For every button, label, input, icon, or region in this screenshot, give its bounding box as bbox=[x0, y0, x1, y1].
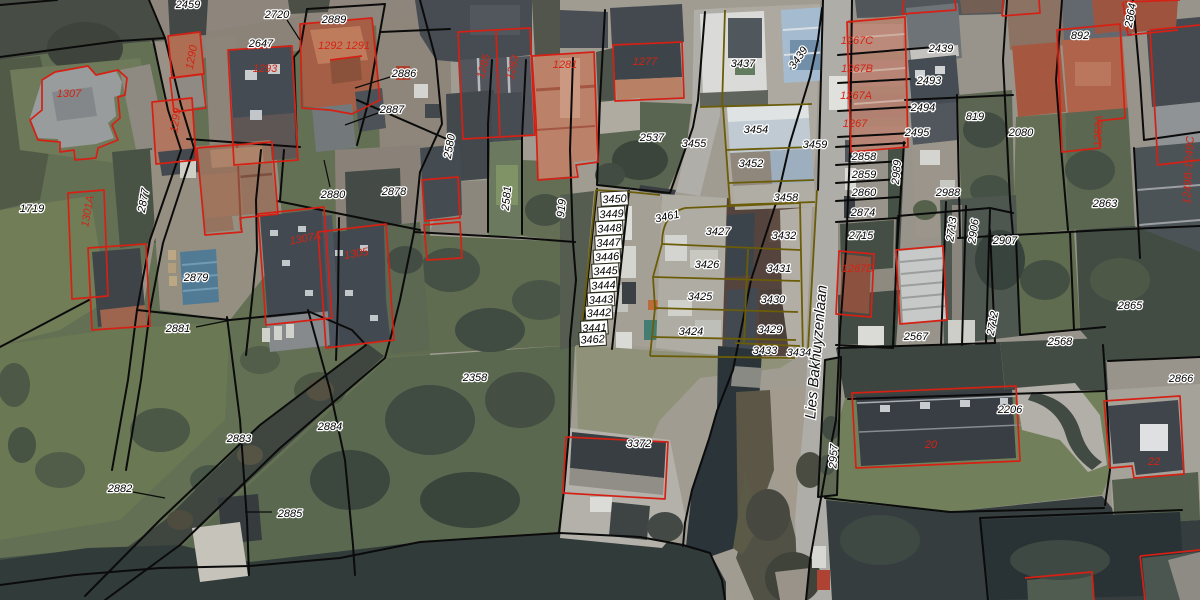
svg-text:3445: 3445 bbox=[593, 265, 619, 278]
svg-text:2886: 2886 bbox=[391, 68, 417, 80]
svg-text:3433: 3433 bbox=[753, 345, 778, 357]
svg-text:2863: 2863 bbox=[1092, 198, 1118, 210]
svg-text:1267A: 1267A bbox=[840, 90, 872, 102]
svg-text:2206: 2206 bbox=[997, 404, 1023, 416]
svg-text:2439: 2439 bbox=[928, 43, 953, 55]
svg-text:819: 819 bbox=[966, 111, 984, 123]
svg-text:2865: 2865 bbox=[1117, 300, 1143, 312]
svg-text:2860: 2860 bbox=[851, 187, 877, 199]
svg-text:1281: 1281 bbox=[553, 59, 577, 71]
svg-text:3450: 3450 bbox=[602, 193, 628, 206]
svg-text:1267D: 1267D bbox=[842, 263, 874, 275]
svg-text:2858: 2858 bbox=[851, 151, 877, 163]
svg-text:3455: 3455 bbox=[682, 138, 707, 150]
svg-text:2493: 2493 bbox=[916, 75, 942, 87]
svg-text:3446: 3446 bbox=[595, 251, 621, 264]
svg-text:3447: 3447 bbox=[596, 237, 622, 250]
svg-text:2866: 2866 bbox=[1168, 373, 1194, 385]
svg-text:3427: 3427 bbox=[706, 226, 731, 238]
svg-text:3425: 3425 bbox=[688, 291, 713, 303]
svg-text:1253A: 1253A bbox=[1092, 115, 1106, 147]
svg-text:2715: 2715 bbox=[848, 230, 874, 242]
svg-text:2494: 2494 bbox=[910, 102, 935, 114]
svg-text:3442: 3442 bbox=[586, 307, 611, 320]
svg-text:2880: 2880 bbox=[320, 189, 346, 201]
svg-text:2887: 2887 bbox=[379, 104, 405, 116]
svg-text:1292 1291: 1292 1291 bbox=[318, 40, 370, 52]
svg-text:2957: 2957 bbox=[827, 443, 840, 470]
svg-text:3431: 3431 bbox=[767, 263, 791, 275]
svg-text:3443: 3443 bbox=[589, 294, 615, 307]
svg-text:2647: 2647 bbox=[248, 38, 274, 50]
svg-text:20: 20 bbox=[924, 439, 938, 451]
svg-text:3426: 3426 bbox=[695, 259, 720, 271]
svg-text:3444: 3444 bbox=[591, 279, 616, 292]
svg-text:2884: 2884 bbox=[317, 421, 342, 433]
svg-text:2459: 2459 bbox=[175, 0, 200, 11]
svg-text:3429: 3429 bbox=[758, 324, 782, 336]
svg-text:3459: 3459 bbox=[803, 139, 827, 151]
svg-text:2883: 2883 bbox=[226, 433, 252, 445]
svg-text:22: 22 bbox=[1147, 456, 1160, 468]
svg-text:2989: 2989 bbox=[890, 159, 904, 185]
svg-text:2907: 2907 bbox=[992, 235, 1018, 247]
svg-text:2720: 2720 bbox=[264, 9, 290, 21]
svg-text:2885: 2885 bbox=[277, 508, 303, 520]
svg-text:3448: 3448 bbox=[597, 222, 623, 235]
svg-text:1719: 1719 bbox=[20, 203, 44, 215]
svg-text:1293: 1293 bbox=[253, 63, 278, 75]
svg-text:3437: 3437 bbox=[731, 58, 756, 70]
svg-text:3449: 3449 bbox=[599, 208, 624, 221]
svg-text:2879: 2879 bbox=[183, 272, 208, 284]
svg-text:2881: 2881 bbox=[165, 323, 190, 335]
svg-text:2878: 2878 bbox=[381, 186, 407, 198]
svg-text:2889: 2889 bbox=[321, 14, 346, 26]
svg-text:2358: 2358 bbox=[462, 372, 488, 384]
svg-text:3458: 3458 bbox=[774, 192, 799, 204]
svg-text:1267B: 1267B bbox=[841, 63, 873, 75]
svg-text:1307: 1307 bbox=[57, 88, 82, 100]
svg-text:2874: 2874 bbox=[850, 207, 875, 219]
svg-text:2882: 2882 bbox=[107, 483, 132, 495]
svg-text:3454: 3454 bbox=[744, 124, 768, 136]
svg-text:3462: 3462 bbox=[580, 333, 605, 346]
svg-text:3430: 3430 bbox=[761, 294, 786, 306]
svg-text:1277: 1277 bbox=[633, 56, 658, 68]
svg-text:919: 919 bbox=[555, 198, 569, 218]
svg-text:1267: 1267 bbox=[843, 118, 868, 130]
svg-text:3432: 3432 bbox=[772, 230, 796, 242]
svg-text:1267C: 1267C bbox=[841, 35, 873, 47]
svg-text:2859: 2859 bbox=[851, 169, 876, 181]
svg-text:892: 892 bbox=[1071, 30, 1089, 42]
svg-text:3372: 3372 bbox=[627, 438, 651, 450]
svg-text:2988: 2988 bbox=[935, 187, 961, 199]
svg-text:2080: 2080 bbox=[1008, 127, 1034, 139]
svg-text:2537: 2537 bbox=[639, 132, 665, 144]
svg-text:2568: 2568 bbox=[1047, 336, 1073, 348]
svg-text:3452: 3452 bbox=[739, 158, 763, 170]
svg-text:2495: 2495 bbox=[904, 127, 930, 139]
svg-text:2567: 2567 bbox=[903, 331, 929, 343]
svg-text:3424: 3424 bbox=[679, 326, 703, 338]
